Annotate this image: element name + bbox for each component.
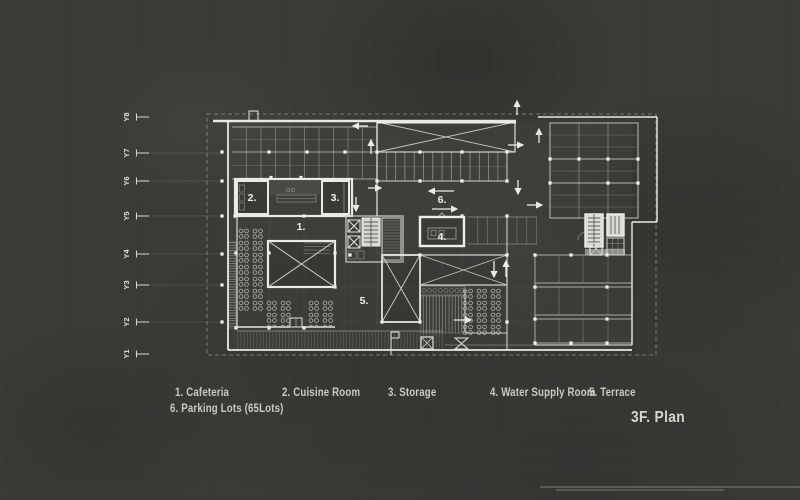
terrace-band-south [237, 331, 443, 349]
terrace-tables [462, 288, 504, 336]
label-room-1: 1. [297, 221, 306, 233]
label-room-6: 6. [438, 194, 447, 206]
sheet-title: 3F. Plan [631, 409, 685, 427]
axis-label-y4: Y4 [122, 249, 131, 259]
legend-item-terrace: 5. Terrace [589, 387, 636, 399]
car-ramp [377, 122, 516, 152]
legend-item-cafeteria: 1. Cafeteria [175, 387, 229, 399]
cafeteria-tables-right [308, 300, 336, 327]
axis-label-y2: Y2 [122, 317, 131, 326]
drawing-sheet: Y8 Y7 Y6 Y5 Y4 Y3 Y2 Y1 [0, 0, 800, 500]
axis-label-y7: Y7 [122, 148, 131, 157]
cafeteria-tables-mid [266, 300, 294, 327]
label-room-3: 3. [331, 192, 340, 204]
axis-label-y5: Y5 [122, 211, 131, 220]
axis-label-y1: Y1 [122, 349, 131, 358]
legend-item-parking-lots: 6. Parking Lots (65Lots) [170, 403, 284, 415]
legend-item-water-supply: 4. Water Supply Room [490, 387, 596, 399]
axis-label-y8: Y8 [122, 112, 131, 121]
axis-label-y6: Y6 [122, 176, 131, 185]
legend-item-storage: 3. Storage [388, 387, 436, 399]
axis-label-y3: Y3 [122, 280, 131, 289]
label-room-4: 4. [438, 231, 447, 243]
legend-item-cuisine-room: 2. Cuisine Room [282, 387, 360, 399]
label-room-2: 2. [248, 192, 257, 204]
cafeteria-tables-left [238, 228, 266, 312]
label-room-5: 5. [360, 295, 369, 307]
